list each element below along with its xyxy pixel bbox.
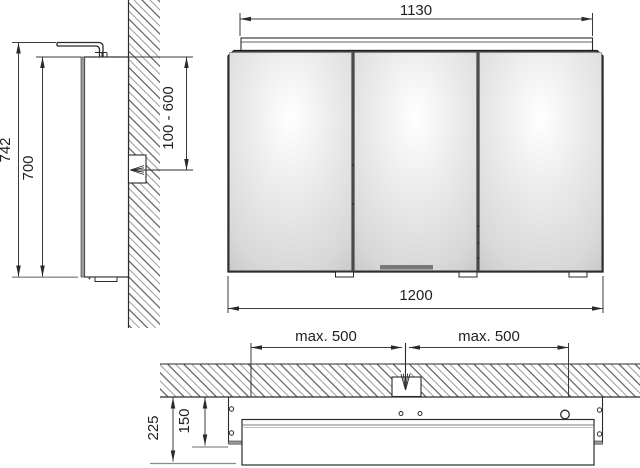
dim-1200-label: 1200	[399, 287, 432, 304]
light-strip	[241, 38, 593, 51]
dim-1130-label: 1130	[400, 2, 432, 19]
dim-arrow-right-icon	[592, 306, 603, 311]
dim-arrow-left-icon	[240, 17, 251, 22]
dim-150	[192, 398, 228, 448]
light-arm	[57, 43, 107, 58]
screw-hole	[418, 412, 422, 416]
hinge-dot	[477, 225, 479, 227]
dim-arrow-up-icon	[40, 57, 45, 68]
dim-arrow-down-icon	[203, 435, 208, 446]
hinge-dot	[477, 257, 479, 259]
dim-arrow-up-icon	[16, 43, 21, 54]
screw-hole	[597, 408, 601, 412]
dim-700-label: 700	[20, 155, 37, 180]
side-view: 742 700 100 - 600	[0, 0, 193, 328]
hinge-dot	[352, 164, 354, 166]
drawing-canvas: 742 700 100 - 600	[0, 0, 640, 468]
dim-arrow-right-icon	[558, 345, 569, 350]
light-arm-inner-line	[57, 46, 100, 57]
dim-max500-left-label: max. 500	[295, 328, 357, 345]
dim-150-label: 150	[176, 408, 193, 433]
mirror-door-right	[480, 53, 602, 271]
cable-hole	[561, 410, 570, 419]
dim-225-label: 225	[145, 415, 162, 440]
cabinet-plan-body	[242, 420, 594, 466]
dim-arrow-right-icon	[582, 17, 593, 22]
technical-drawing: 742 700 100 - 600	[0, 0, 640, 468]
dim-arrow-up-icon	[171, 398, 176, 409]
bracket-foot	[229, 441, 243, 444]
dim-max500-right-label: max. 500	[458, 328, 520, 345]
dim-arrow-down-icon	[40, 266, 45, 277]
mirror-door-edge-side	[81, 57, 85, 277]
dim-100-600-label: 100 - 600	[160, 86, 177, 149]
door-tab-dot	[89, 278, 91, 280]
dim-arrow-down-icon	[171, 451, 176, 462]
dim-arrow-left-icon	[251, 345, 262, 350]
door-tab-side	[95, 277, 117, 282]
dim-742-label: 742	[0, 137, 14, 162]
hinge-dot	[352, 203, 354, 205]
plan-view: max. 500 max. 500 225 150	[145, 328, 640, 465]
screw-hole	[229, 431, 233, 435]
hinge-dot	[477, 242, 479, 244]
dim-arrow-up-icon	[184, 57, 189, 68]
dim-225	[150, 398, 236, 464]
front-view: 1130 1200	[228, 2, 603, 313]
door-tab	[569, 272, 587, 277]
mirror-door-left	[230, 53, 352, 271]
screw-hole	[229, 407, 233, 411]
screw-hole	[399, 412, 403, 416]
supply-cable-arrow-side	[131, 166, 194, 175]
dim-arrow-right-icon	[391, 345, 402, 350]
dim-arrow-left-icon	[409, 345, 420, 350]
dim-arrow-down-icon	[184, 159, 189, 170]
door-tab	[336, 272, 354, 277]
dim-arrow-up-icon	[203, 398, 208, 409]
mirror-door-center	[355, 53, 477, 271]
dim-arrow-down-icon	[16, 266, 21, 277]
screw-hole	[597, 432, 601, 436]
light-arm-outer-line	[57, 43, 103, 58]
cabinet-side-profile	[85, 57, 129, 277]
dim-arrow-left-icon	[228, 306, 239, 311]
back-bracket-left	[229, 397, 243, 444]
door-tab	[459, 272, 477, 277]
under-cabinet-light-strip	[380, 265, 433, 270]
